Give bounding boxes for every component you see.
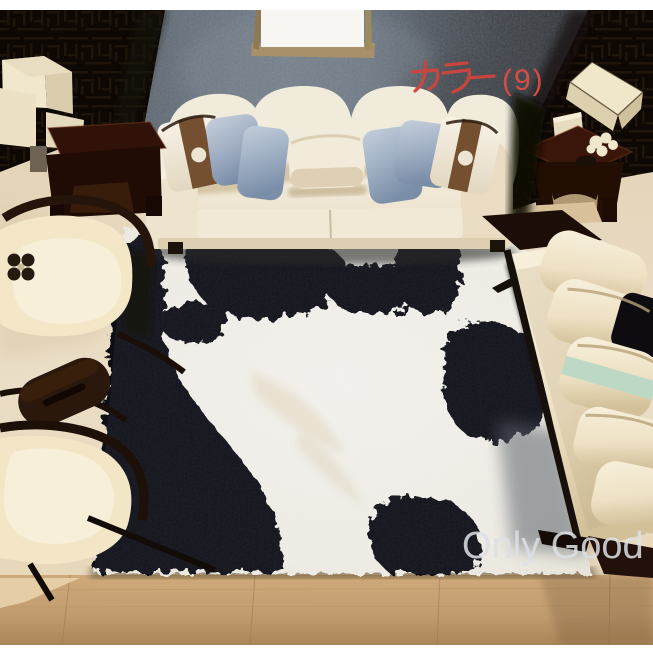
svg-text:(9): (9) — [502, 64, 545, 97]
svg-text:Only Good: Only Good — [462, 525, 644, 567]
